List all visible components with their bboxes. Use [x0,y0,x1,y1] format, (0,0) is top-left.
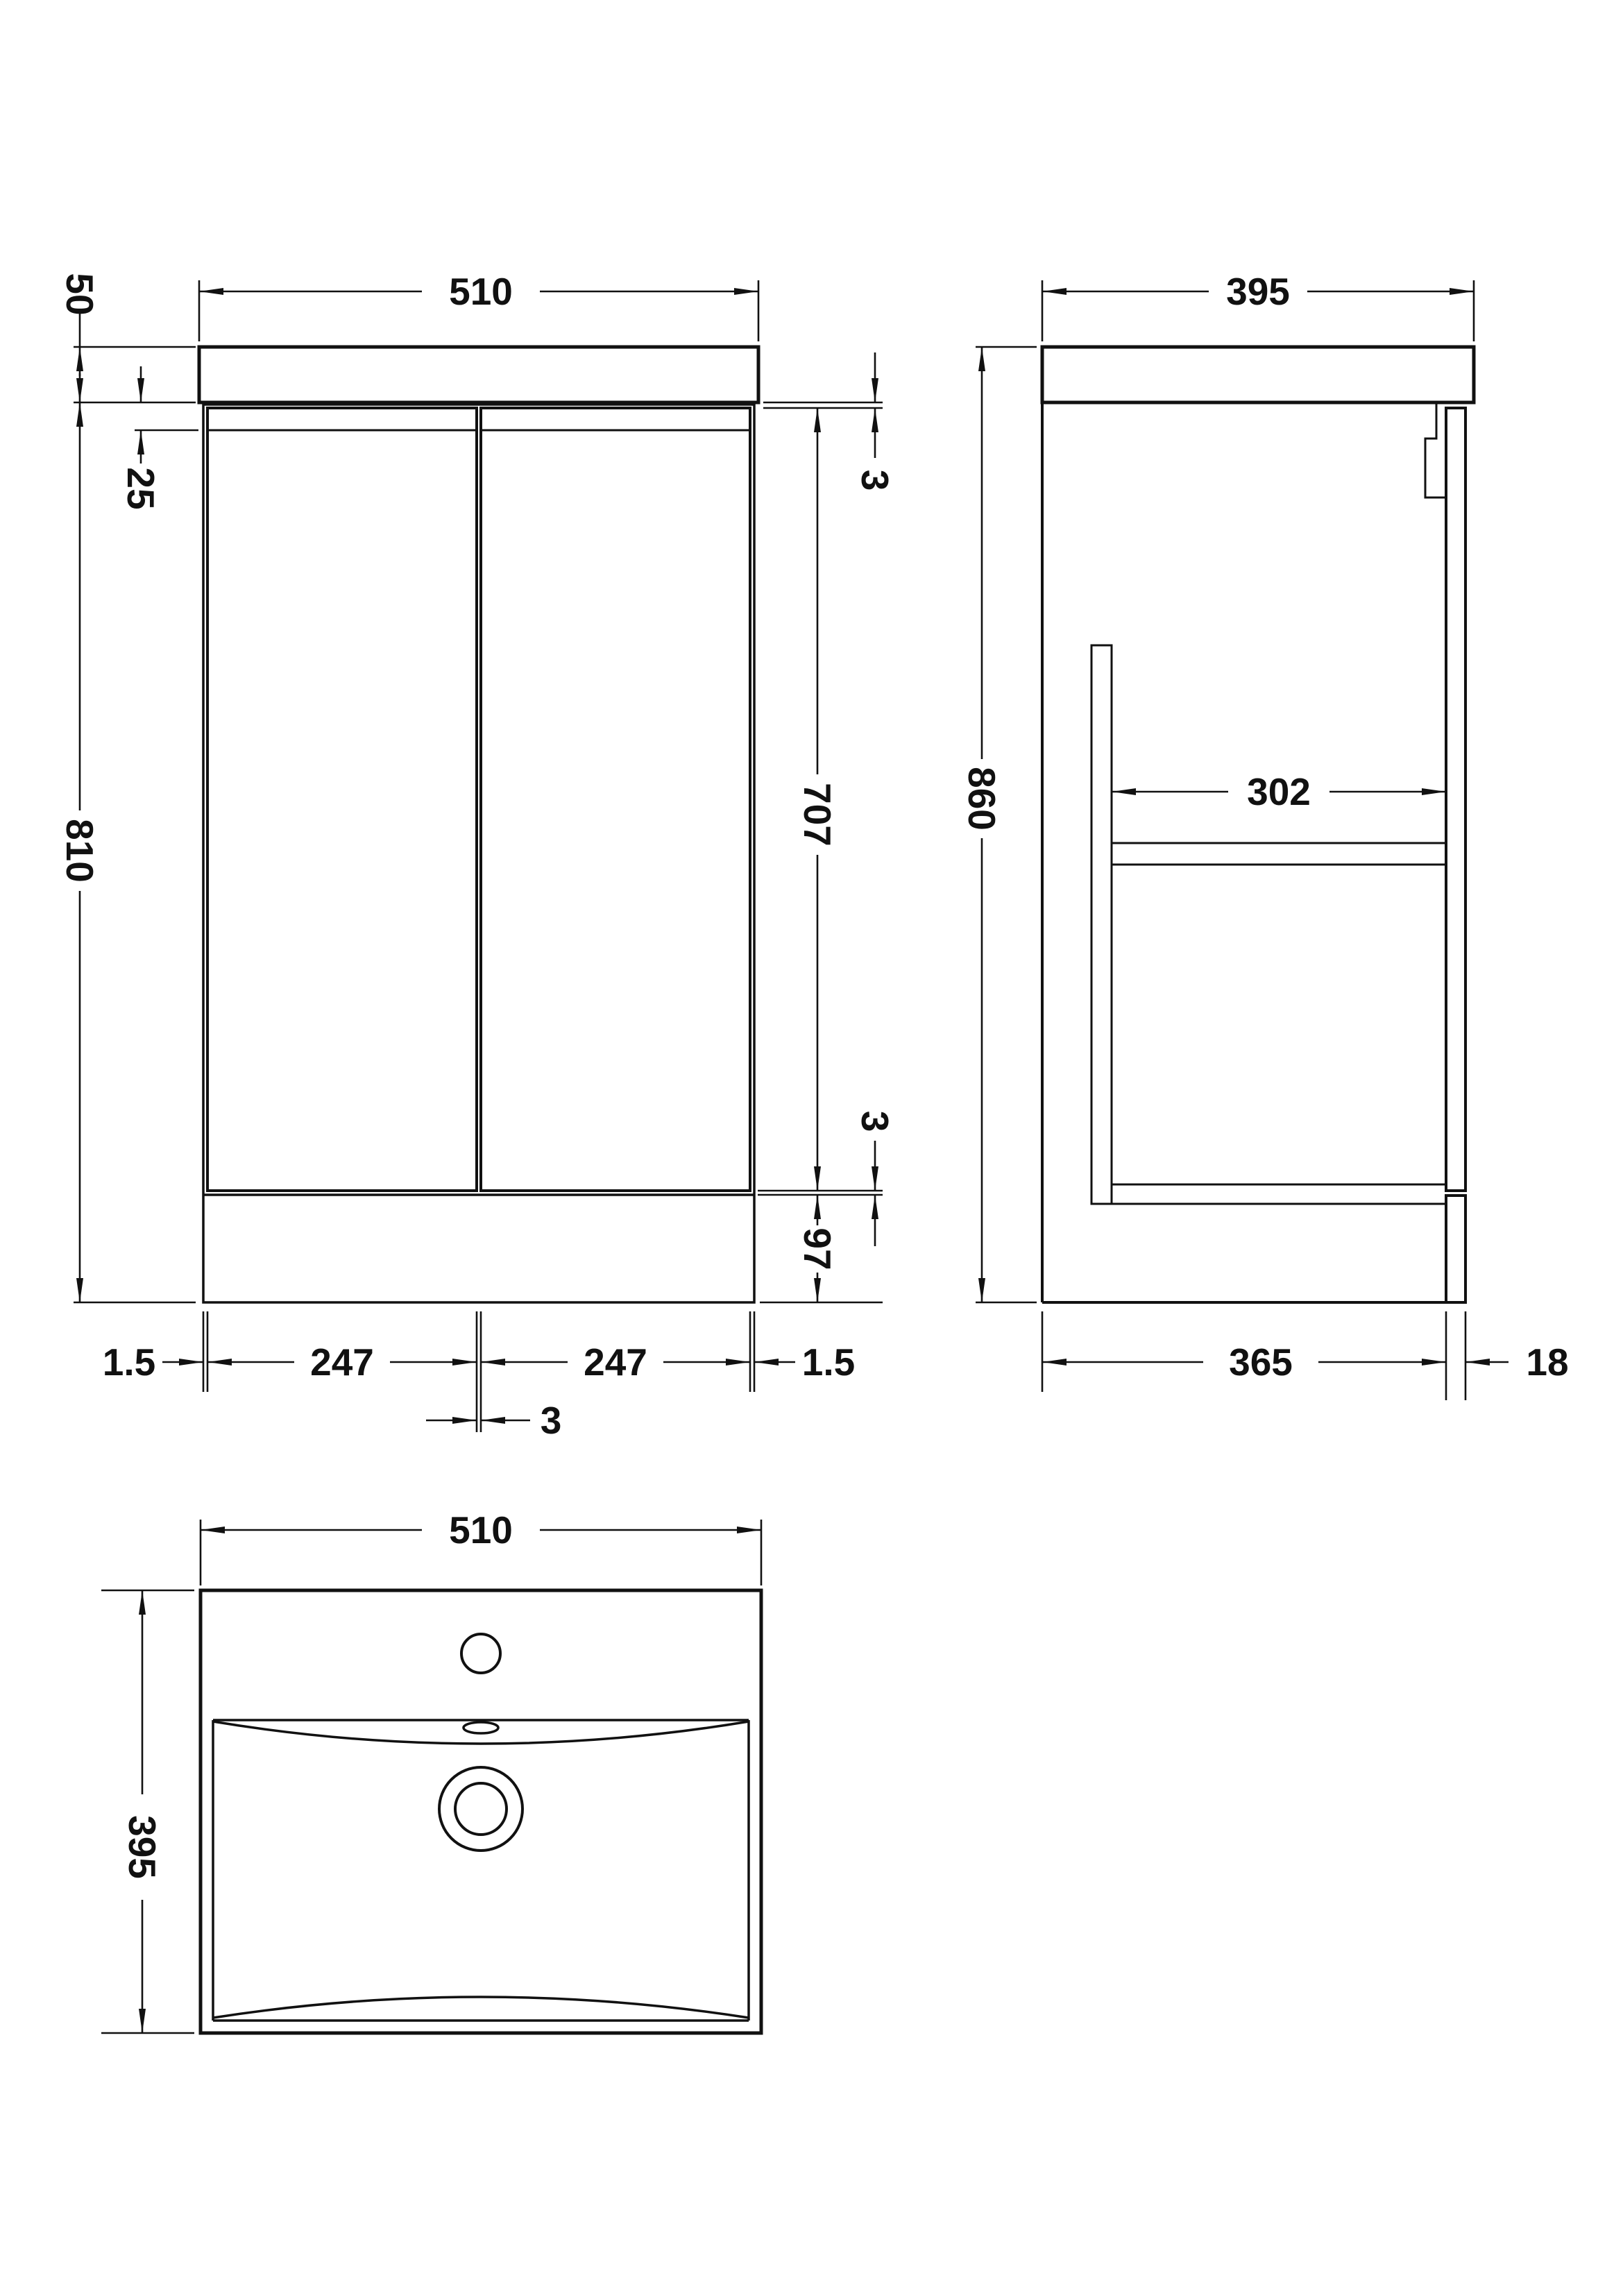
dim-left-door-width-label: 247 [310,1341,374,1384]
dim-top-gap-label: 3 [853,470,897,491]
side-view: 395 860 302 365 18 [960,270,1569,1400]
front-view: 510 50 25 810 3 707 3 [58,270,897,1442]
dim-right-door-width-label: 247 [584,1341,647,1384]
side-plinth-panel [1446,1196,1465,1302]
dim-internal-depth-label: 302 [1247,770,1311,813]
dim-door-thickness-label: 18 [1526,1341,1568,1384]
dim-plinth-height-label: 97 [796,1227,839,1270]
side-shelf [1112,843,1446,865]
waste-drain-inner [455,1783,507,1835]
dim-basin-depth-label: 395 [121,1815,164,1879]
vanity-technical-drawing: 510 50 25 810 3 707 3 [0,0,1623,2296]
dim-bottom-gap-label: 3 [853,1111,897,1132]
dim-worktop-thickness-label: 50 [58,273,101,315]
side-hinge-detail [1425,402,1446,498]
dim-overall-height-label: 860 [960,767,1003,831]
side-door-panel [1446,408,1465,1191]
dim-basin-width-label: 510 [449,1508,513,1551]
dim-overall-depth-label: 395 [1226,270,1290,313]
tap-hole [461,1634,500,1673]
dim-door-recess-label: 25 [119,467,162,509]
dim-door-height-label: 707 [796,783,839,847]
technical-drawing-page: 510 50 25 810 3 707 3 [0,0,1623,2296]
dim-right-edge-gap-label: 1.5 [802,1341,855,1384]
dim-centre-door-gap-label: 3 [541,1399,562,1442]
plan-view: 510 395 [101,1508,761,2033]
dim-left-edge-gap-label: 1.5 [103,1341,155,1384]
front-left-door [207,408,477,1191]
front-worktop [199,347,758,402]
overflow-slot [464,1722,498,1733]
side-worktop [1042,347,1474,402]
dim-carcass-depth-label: 365 [1229,1341,1293,1384]
front-right-door [481,408,750,1191]
dim-cabinet-height-label: 810 [58,819,101,883]
dim-front-width-label: 510 [449,270,513,313]
side-internal-back-rail [1091,645,1112,1204]
